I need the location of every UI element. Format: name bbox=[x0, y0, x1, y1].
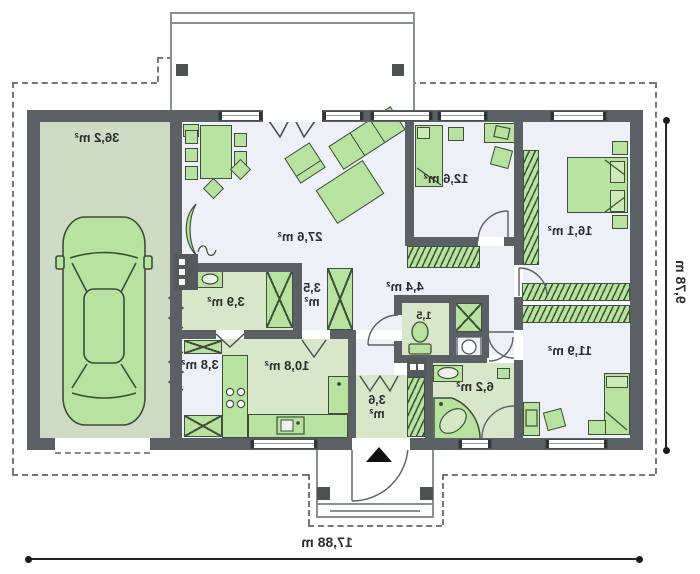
dimension-depth-label: 9,78 m bbox=[673, 247, 689, 317]
terrace-inner-line bbox=[172, 22, 413, 24]
dimension-line-width bbox=[28, 558, 640, 560]
window-bedroom3 bbox=[545, 439, 608, 449]
terrace-post-right bbox=[392, 64, 404, 76]
terrace bbox=[170, 12, 415, 110]
dimension-dot bbox=[25, 556, 32, 563]
window-kitchen bbox=[250, 439, 318, 449]
desk bbox=[523, 402, 540, 436]
dimension-width-label: 17,88 m bbox=[281, 534, 373, 550]
bathroom-shelf bbox=[497, 368, 510, 379]
dining-chair bbox=[185, 166, 198, 180]
porch-post-right bbox=[420, 487, 433, 500]
dimension-line-depth bbox=[665, 120, 667, 450]
dining-chair bbox=[185, 130, 198, 144]
room-label-wardrobe-value: 3,5 bbox=[290, 282, 334, 296]
roof-outline-porch-right bbox=[442, 474, 444, 525]
room-label-wardrobe: 3,5 m² bbox=[290, 282, 334, 309]
washer bbox=[455, 303, 482, 332]
porch-step-1 bbox=[318, 503, 432, 505]
wall-bathroom-bedroom3 bbox=[514, 360, 523, 438]
room-label-kitchen: 10,8 m² bbox=[247, 359, 327, 373]
wall-utility-hall2-a bbox=[182, 330, 216, 339]
dining-chair bbox=[234, 133, 247, 147]
bedroom3-wardrobe-strip bbox=[522, 305, 630, 323]
roof-outline-bottom-a bbox=[12, 474, 308, 476]
garage-floor bbox=[40, 122, 170, 438]
pillow bbox=[417, 127, 430, 139]
pillow bbox=[610, 190, 625, 212]
wall-kitchen-entry bbox=[348, 339, 356, 438]
room-label-wc: 1,5 bbox=[404, 311, 444, 323]
floor-plan: 36,2 m² 27,6 m² 12,6 m² 16,1 m² 11,9 m² … bbox=[0, 0, 700, 574]
nightstand bbox=[448, 127, 464, 141]
wall-right bbox=[630, 122, 643, 450]
wall-hall-bedroom2 bbox=[514, 297, 523, 330]
bedroom2-wardrobe-tall bbox=[523, 150, 539, 265]
window-bathroom bbox=[458, 439, 492, 449]
window-bedroom2 bbox=[550, 111, 607, 121]
dining-table bbox=[200, 125, 232, 179]
chimney-living bbox=[174, 254, 198, 290]
room-label-entry-unit: m² bbox=[355, 408, 399, 422]
entry-wardrobe bbox=[407, 377, 425, 437]
porch-step-2 bbox=[330, 510, 420, 512]
room-label-bedroom3: 11,9 m² bbox=[530, 344, 610, 358]
side-table bbox=[588, 420, 606, 435]
dimension-dot bbox=[663, 447, 670, 454]
room-label-bedroom1: 12,6 m² bbox=[406, 172, 486, 186]
utility-cabinet bbox=[266, 270, 293, 328]
roof-outline-bottom-b bbox=[442, 474, 655, 476]
room-label-entry: 3,6 m² bbox=[355, 394, 399, 421]
wall-left bbox=[27, 122, 40, 450]
pillow bbox=[610, 161, 625, 183]
roof-outline-top-b bbox=[410, 82, 655, 84]
room-label-bedroom2: 16,1 m² bbox=[530, 224, 610, 238]
window-living-2 bbox=[322, 111, 364, 121]
room-label-wardrobe-unit: m² bbox=[290, 296, 334, 310]
wall-hall-bedroom1-a bbox=[405, 237, 478, 246]
roof-outline-terrace-left bbox=[157, 57, 159, 82]
garage-door-gap bbox=[55, 438, 150, 450]
corridor-floor bbox=[356, 339, 394, 375]
roof-outline-porch-left bbox=[308, 474, 310, 525]
wall-wardrobe-kitchen bbox=[330, 330, 356, 339]
window-bedroom1 bbox=[437, 111, 488, 121]
chimney-entry bbox=[407, 358, 427, 377]
terrace-post-left bbox=[176, 64, 188, 76]
hall2-cabinet-bottom bbox=[184, 415, 222, 437]
garage-door-line bbox=[55, 452, 150, 454]
window-living-1 bbox=[218, 111, 263, 121]
room-label-hall: 4,4 m² bbox=[365, 280, 445, 294]
room-label-garage: 36,2 m² bbox=[57, 131, 137, 145]
hall-wardrobe bbox=[407, 246, 480, 268]
wall-wc-washer bbox=[449, 303, 456, 358]
pillow bbox=[606, 376, 628, 388]
utility-sink bbox=[197, 271, 223, 288]
roof-outline-right bbox=[655, 82, 657, 474]
roof-outline-left bbox=[12, 82, 14, 474]
room-label-utility: 3,9 m² bbox=[186, 295, 266, 309]
wall-washer-sink bbox=[456, 332, 482, 337]
entrance-arrow bbox=[366, 447, 392, 462]
kitchen-counter-bottom bbox=[248, 414, 348, 438]
room-label-bathroom: 6,2 m² bbox=[435, 380, 515, 394]
porch-post-left bbox=[317, 487, 330, 500]
dimension-dot bbox=[636, 556, 643, 563]
wall-washer-right bbox=[482, 295, 489, 358]
wall-wc-left-a bbox=[394, 303, 402, 315]
nightstand bbox=[612, 215, 628, 229]
wall-bedroom1-bedroom2 bbox=[514, 122, 523, 265]
hall2-cabinet-top bbox=[184, 340, 222, 354]
bedroom2-wardrobe-strip bbox=[522, 283, 630, 301]
wall-living-utility bbox=[182, 263, 302, 272]
dimension-dot bbox=[663, 117, 670, 124]
wall-wc-top bbox=[394, 295, 489, 303]
room-label-living: 27,6 m² bbox=[260, 230, 340, 244]
room-label-hall2: 3,8 m² bbox=[160, 358, 240, 372]
fridge bbox=[328, 376, 350, 414]
nightstand bbox=[612, 141, 628, 155]
window-living-3 bbox=[370, 111, 433, 121]
dining-chair bbox=[185, 148, 198, 162]
roof-outline-top-a bbox=[12, 82, 157, 84]
room-label-entry-value: 3,6 bbox=[355, 394, 399, 408]
wall-hall-bedroom1-b bbox=[504, 237, 514, 246]
wall-utility-hall2-b bbox=[244, 330, 300, 339]
roof-outline-porch-bottom bbox=[308, 525, 442, 527]
terrace-door-gap bbox=[263, 110, 322, 122]
